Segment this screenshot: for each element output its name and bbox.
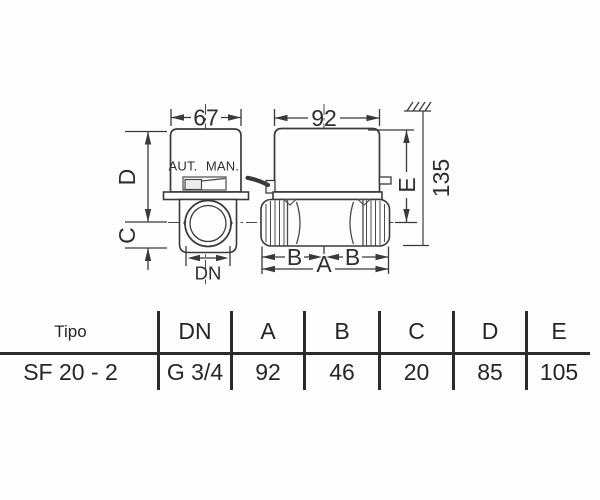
datasheet-page: { "drawing": { "front": { "width": "67",… — [0, 0, 600, 500]
table-header-e: E — [525, 311, 590, 355]
dim-a-label: A — [316, 251, 332, 277]
table-header-d: D — [452, 311, 525, 355]
flange-front — [164, 192, 249, 200]
valve-dimension-drawing: AUT. MAN. 67 D — [0, 0, 600, 310]
dim-67-label: 67 — [193, 105, 219, 131]
table-cell-b: 46 — [303, 355, 378, 390]
ceiling-hatch-icon — [404, 102, 431, 111]
table-header-tipo: Tipo — [0, 311, 157, 355]
cable — [248, 178, 269, 185]
aut-label: AUT. — [169, 159, 198, 174]
dim-dn-label: DN — [195, 263, 222, 284]
table-cell-e: 105 — [525, 355, 590, 390]
table-cell-c: 20 — [378, 355, 452, 390]
dimension-table: Tipo DN A B C D E SF 20 - 2 G 3/4 92 46 … — [0, 311, 590, 390]
dim-c-label: C — [114, 227, 140, 244]
table-header-b: B — [303, 311, 378, 355]
dim-b-right-label: B — [345, 244, 360, 270]
dim-e-label: E — [394, 177, 420, 192]
valve-body-side — [261, 200, 390, 247]
table-header-c: C — [378, 311, 452, 355]
dim-b-left-label: B — [287, 244, 302, 270]
flange-side — [273, 192, 382, 200]
dim-92-label: 92 — [311, 105, 337, 131]
man-label: MAN. — [206, 159, 239, 174]
table-cell-dn: G 3/4 — [157, 355, 230, 390]
side-stub — [380, 177, 392, 184]
table-cell-d: 85 — [452, 355, 525, 390]
port-outer-circle — [185, 201, 231, 247]
front-view: AUT. MAN. — [164, 129, 249, 253]
table-cell-tipo: SF 20 - 2 — [0, 355, 157, 390]
actuator-housing-side — [275, 129, 380, 193]
dim-135-label: 135 — [428, 159, 454, 197]
dim-d-label: D — [114, 169, 140, 186]
table-header-dn: DN — [157, 311, 230, 355]
side-view — [248, 129, 392, 247]
table-cell-a: 92 — [230, 355, 303, 390]
table-header-a: A — [230, 311, 303, 355]
